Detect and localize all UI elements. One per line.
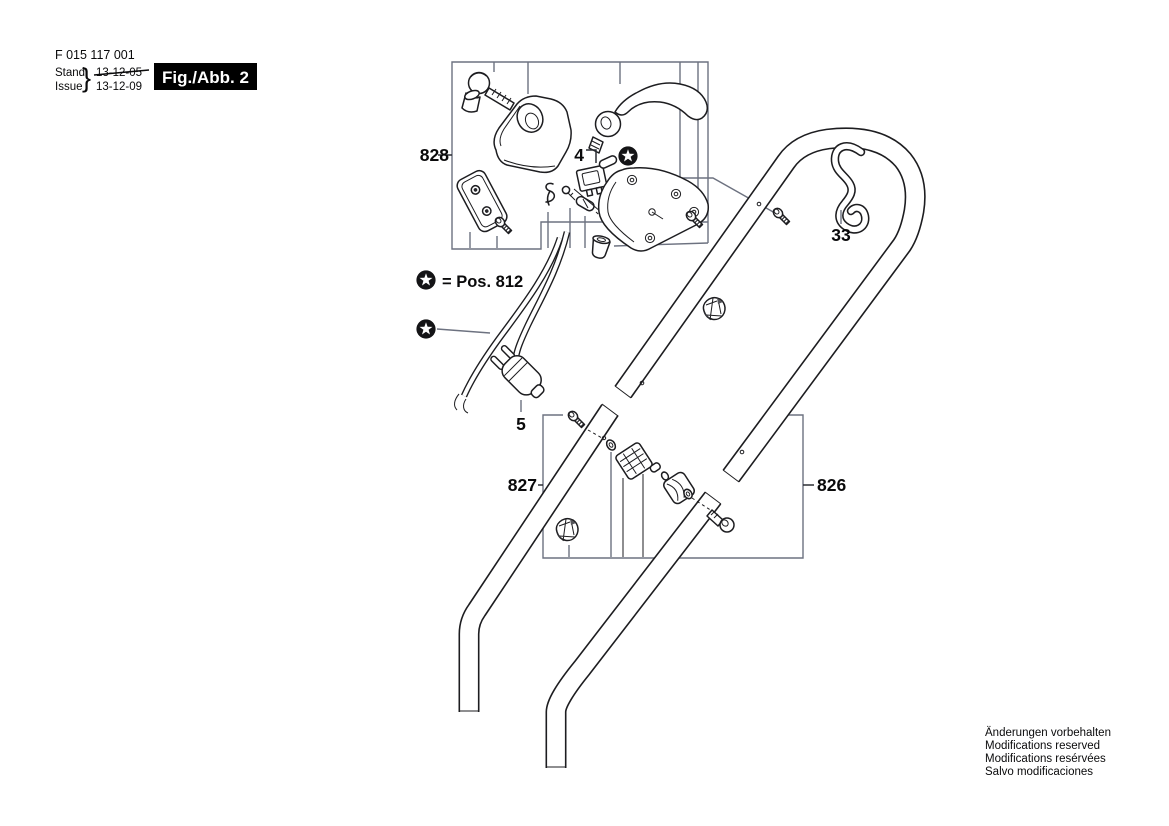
label-4: 4: [574, 145, 584, 165]
footer-line-fr: Modifications resérvées: [985, 753, 1106, 765]
label-33: 33: [831, 225, 851, 245]
figure-label: Fig./Abb. 2: [162, 68, 249, 87]
wing-knob: [556, 519, 578, 541]
footer-line-en: Modifications reserved: [985, 740, 1100, 752]
plate-screw: [493, 215, 511, 233]
document-number: F 015 117 001: [55, 48, 135, 62]
label-826: 826: [817, 475, 846, 495]
small-screw: [562, 186, 575, 200]
star-icon: [618, 146, 637, 165]
clamp-screw: [566, 409, 584, 427]
handle-screw: [771, 206, 789, 224]
exploded-parts-diagram: F 015 117 001 Stand Issue } 13-12-05 13-…: [0, 0, 1169, 826]
label-5: 5: [516, 414, 526, 434]
wing-knob: [703, 298, 725, 320]
star-icon: [416, 319, 435, 338]
stand-label: Stand: [55, 67, 85, 79]
clamp-half-inner: [615, 442, 654, 481]
footer-line-es: Salvo modificaciones: [985, 766, 1093, 778]
cable-grommet: [589, 235, 611, 260]
contact-pin: [598, 155, 618, 170]
cable-clip-spring: [546, 183, 554, 205]
washer: [605, 438, 617, 451]
star-icon: [416, 270, 435, 289]
footer-block: Änderungen vorbehalten Modifications res…: [985, 727, 1111, 778]
release-lever: [589, 83, 707, 153]
label-827: 827: [508, 475, 537, 495]
power-cable: [455, 232, 567, 413]
brace-glyph: }: [82, 63, 91, 93]
issue-label: Issue: [55, 81, 83, 93]
footer-line-de: Änderungen vorbehalten: [985, 727, 1111, 739]
star-legend-text: = Pos. 812: [442, 273, 523, 291]
parts-diagram-page: F 015 117 001 Stand Issue } 13-12-05 13-…: [0, 0, 1169, 826]
issue-date: 13-12-09: [96, 81, 142, 93]
carriage-bolt: [720, 518, 734, 532]
label-828: 828: [420, 145, 449, 165]
header-block: F 015 117 001 Stand Issue } 13-12-05 13-…: [55, 48, 257, 93]
clamp-hardware-826: [692, 298, 734, 532]
cable-hook-part: [835, 146, 865, 229]
